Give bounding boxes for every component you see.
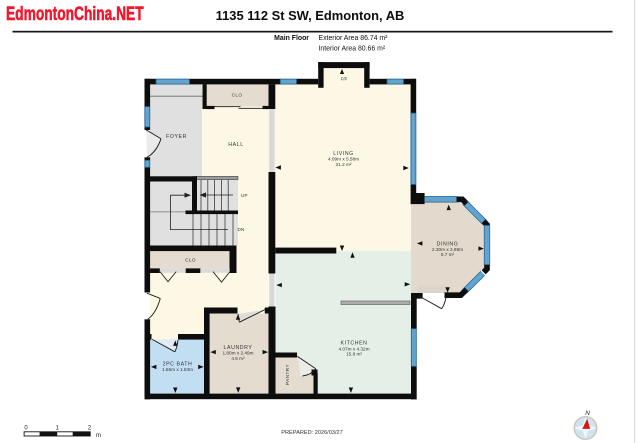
- svg-text:PREPARED: 2026/03/27: PREPARED: 2026/03/27: [281, 430, 342, 436]
- svg-text:1: 1: [56, 426, 60, 432]
- svg-text:DN: DN: [238, 227, 245, 232]
- svg-text:1.66m x 1.63m: 1.66m x 1.63m: [162, 367, 193, 372]
- svg-text:CLO: CLO: [185, 258, 196, 263]
- svg-text:4.09m x 5.58m: 4.09m x 5.58m: [328, 157, 359, 162]
- svg-text:21.2 m²: 21.2 m²: [336, 162, 352, 167]
- svg-text:EdmontonChina.NET: EdmontonChina.NET: [6, 3, 144, 25]
- svg-text:Interior Area 80.66 m²: Interior Area 80.66 m²: [319, 45, 386, 52]
- svg-text:N: N: [585, 410, 590, 417]
- svg-text:2.30m x 2.89m: 2.30m x 2.89m: [432, 247, 463, 252]
- svg-text:CLO: CLO: [232, 92, 243, 97]
- svg-text:HALL: HALL: [228, 142, 243, 148]
- svg-text:Main Floor: Main Floor: [274, 35, 309, 42]
- svg-text:UP: UP: [241, 193, 248, 198]
- svg-text:5.7 m²: 5.7 m²: [441, 252, 455, 257]
- svg-text:FOYER: FOYER: [166, 134, 187, 140]
- svg-text:1135 112 St SW, Edmonton, AB: 1135 112 St SW, Edmonton, AB: [216, 8, 405, 23]
- svg-text:4.5 m²: 4.5 m²: [231, 356, 245, 361]
- svg-text:15.8 m²: 15.8 m²: [346, 352, 362, 357]
- svg-text:1.80m x 2.49m: 1.80m x 2.49m: [222, 351, 253, 356]
- svg-text:Exterior Area 86.74 m²: Exterior Area 86.74 m²: [319, 35, 389, 42]
- svg-text:F/P: F/P: [341, 76, 348, 81]
- svg-text:PANTRY: PANTRY: [285, 364, 290, 385]
- svg-text:2: 2: [88, 426, 92, 432]
- svg-text:m: m: [96, 433, 101, 439]
- svg-text:0: 0: [24, 426, 28, 432]
